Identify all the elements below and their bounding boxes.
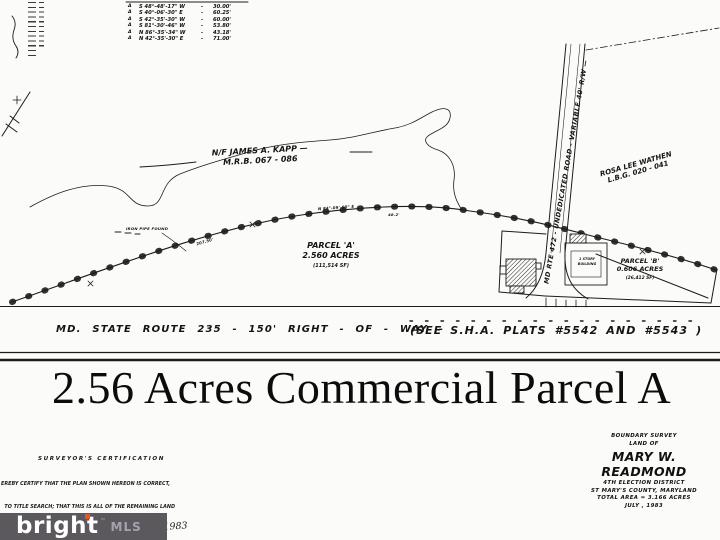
distance: 71.00' — [213, 36, 245, 42]
page-title: 2.56 Acres Commercial Parcel A — [52, 361, 671, 414]
survey-plat-sheet: Δ S 48°-48'-17" W - 30.00' Δ S 40°-06'-3… — [0, 0, 720, 540]
delta-icon: Δ — [128, 36, 139, 42]
certification-heading: SURVEYOR'S CERTIFICATION — [38, 456, 165, 462]
route-235-label: MD. STATE ROUTE 235 - 150' RIGHT - OF - … — [56, 324, 444, 336]
parcel-a-label: PARCEL 'A' 2.560 ACRES (111,514 SF) — [283, 241, 379, 270]
boundary-dimension: 48.2' — [388, 212, 400, 217]
logo-plus-icon — [85, 514, 90, 519]
bearing-table: Δ S 48°-48'-17" W - 30.00' Δ S 40°-06'-3… — [128, 4, 245, 42]
parcel-b-label: PARCEL 'B' 0.606 ACRES (26,412 SF) — [598, 258, 682, 281]
building-label: 1 STORY BUILDING — [572, 257, 602, 267]
mls-wordmark: MLS — [111, 520, 142, 534]
margin-notes — [39, 2, 44, 48]
bearing: N 42°-35'-30" E — [139, 36, 201, 42]
boundary-note: IRON PIPE FOUND — [126, 226, 168, 231]
title-block: BOUNDARY SURVEY LAND OF MARY W. READMOND… — [571, 433, 717, 510]
margin-scribble — [12, 16, 18, 58]
junction-hatches — [546, 298, 586, 307]
bright-mls-logo: bright ™ MLS — [0, 513, 167, 540]
margin-notes — [28, 2, 36, 56]
owner-name: MARY W. READMOND — [571, 449, 717, 479]
sha-plats-note: (SEE S.H.A. PLATS #5542 AND #5543 ) — [410, 324, 702, 337]
table-row: Δ N 42°-35'-30" E - 71.00' — [128, 36, 245, 42]
trademark-symbol: ™ — [101, 518, 106, 524]
north-reference-line — [2, 92, 30, 136]
